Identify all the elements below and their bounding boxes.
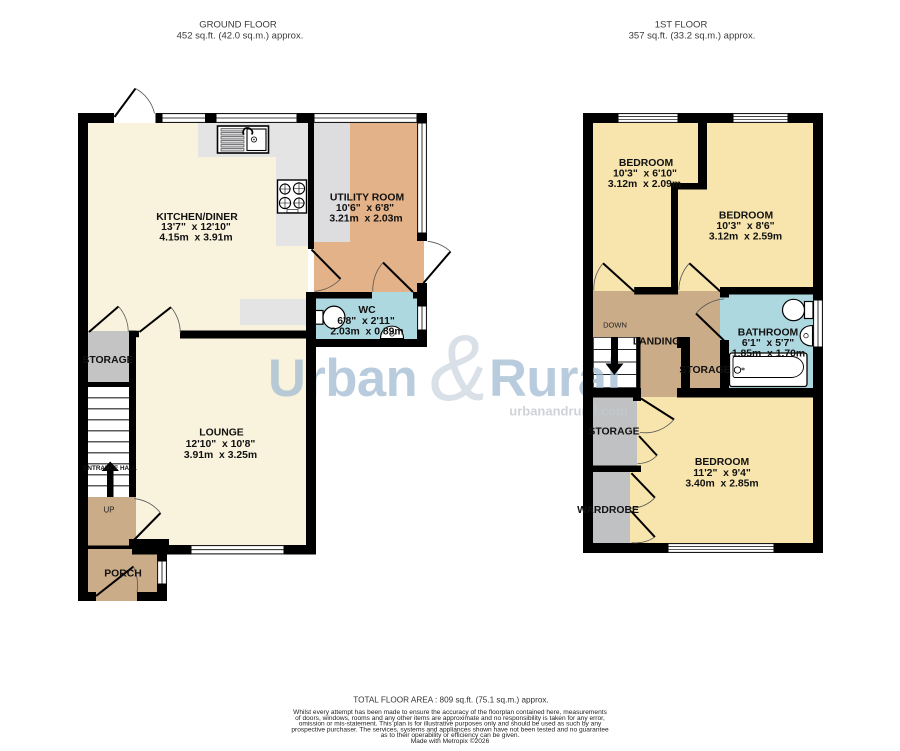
svg-text:Urban: Urban [268, 349, 417, 408]
svg-text:Rural: Rural [489, 349, 621, 408]
svg-text:BEDROOM: BEDROOM [719, 211, 773, 222]
svg-text:3.12m x 2.59m: 3.12m x 2.59m [709, 232, 782, 243]
svg-text:1.85m x 1.70m: 1.85m x 1.70m [732, 348, 805, 359]
svg-text:GROUND FLOOR: GROUND FLOOR [199, 20, 277, 31]
svg-text:10'6" x 6'8": 10'6" x 6'8" [336, 203, 394, 214]
svg-text:4.15m x 3.91m: 4.15m x 3.91m [159, 232, 232, 243]
svg-text:DOWN: DOWN [603, 321, 627, 330]
svg-text:11'2" x 9'4": 11'2" x 9'4" [693, 468, 751, 479]
svg-text:urbanandrural.com: urbanandrural.com [509, 403, 627, 418]
svg-text:2.03m x 0.89m: 2.03m x 0.89m [330, 327, 403, 338]
svg-text:WC: WC [358, 305, 376, 316]
svg-text:357 sq.ft. (33.2 sq.m.) approx: 357 sq.ft. (33.2 sq.m.) approx. [629, 31, 756, 42]
svg-text:&: & [430, 315, 488, 420]
svg-text:3.40m x 2.85m: 3.40m x 2.85m [685, 479, 758, 490]
svg-text:12'10" x 10'8": 12'10" x 10'8" [186, 439, 256, 450]
svg-text:452 sq.ft. (42.0 sq.m.) approx: 452 sq.ft. (42.0 sq.m.) approx. [177, 31, 304, 42]
svg-text:Made with Metropix ©2026: Made with Metropix ©2026 [411, 737, 490, 745]
svg-text:STORAGE: STORAGE [679, 365, 730, 376]
svg-text:10'3" x 8'6": 10'3" x 8'6" [716, 221, 774, 232]
svg-text:BATHROOM: BATHROOM [738, 327, 798, 338]
svg-text:PORCH: PORCH [104, 569, 142, 580]
svg-text:3.91m x 3.25m: 3.91m x 3.25m [184, 450, 257, 461]
svg-text:STORAGE: STORAGE [82, 355, 133, 366]
svg-text:3.21m x 2.03m: 3.21m x 2.03m [329, 214, 402, 225]
svg-text:3.12m x 2.09m: 3.12m x 2.09m [608, 179, 681, 190]
svg-text:BEDROOM: BEDROOM [619, 158, 673, 169]
svg-text:1ST FLOOR: 1ST FLOOR [655, 20, 708, 31]
svg-text:LANDING: LANDING [633, 337, 680, 348]
svg-text:WARDROBE: WARDROBE [577, 505, 639, 516]
svg-text:10'3" x 6'10": 10'3" x 6'10" [613, 169, 677, 180]
svg-text:6'8" x 2'11": 6'8" x 2'11" [337, 316, 395, 327]
svg-text:BEDROOM: BEDROOM [695, 457, 749, 468]
svg-text:UP: UP [104, 506, 115, 515]
svg-text:LOUNGE: LOUNGE [199, 427, 244, 438]
svg-text:UTILITY ROOM: UTILITY ROOM [330, 193, 404, 204]
svg-text:TOTAL FLOOR AREA : 809 sq.ft.: TOTAL FLOOR AREA : 809 sq.ft. (75.1 sq.m… [353, 696, 549, 705]
svg-text:ENTRANCE HALL: ENTRANCE HALL [83, 465, 137, 472]
svg-text:STORAGE: STORAGE [588, 427, 639, 438]
